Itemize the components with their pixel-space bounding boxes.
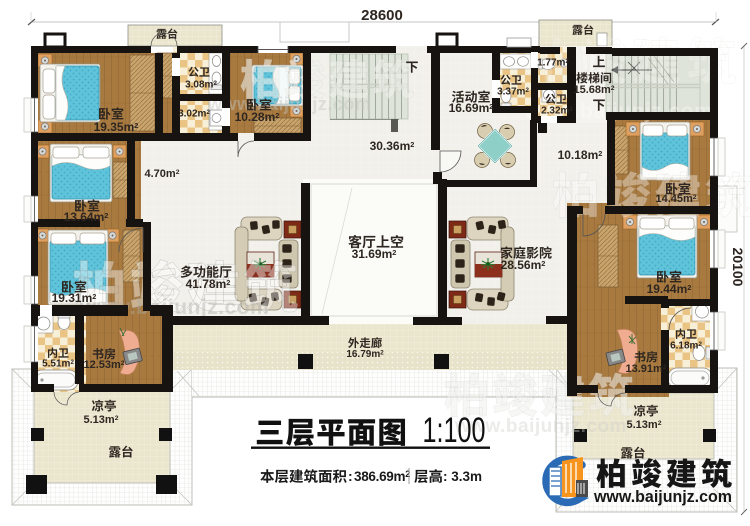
svg-text:10.18m2: 10.18m2 (558, 148, 603, 162)
svg-text:6.18m2: 6.18m2 (670, 341, 702, 352)
svg-text:www.baijunjz.com: www.baijunjz.com (593, 487, 732, 506)
svg-text:30.36m2: 30.36m2 (370, 139, 415, 153)
svg-text:5.51m2: 5.51m2 (42, 359, 74, 370)
svg-text:19.35m2: 19.35m2 (94, 120, 139, 134)
svg-text:28.56m2: 28.56m2 (501, 258, 546, 272)
svg-text:3.08m2: 3.08m2 (185, 80, 217, 91)
svg-text:1.77m2: 1.77m2 (537, 58, 569, 69)
svg-text:: 3.3m: : 3.3m (443, 469, 482, 484)
svg-text:19.31m2: 19.31m2 (52, 291, 97, 305)
svg-text:12.53m2: 12.53m2 (83, 359, 124, 371)
svg-text:41.78m2: 41.78m2 (186, 277, 231, 291)
svg-text:14.45m2: 14.45m2 (655, 193, 696, 205)
svg-text:19.44m2: 19.44m2 (647, 282, 692, 296)
svg-text:28600: 28600 (361, 7, 403, 24)
svg-text:31.69m2: 31.69m2 (352, 247, 397, 261)
svg-text:3.02m2: 3.02m2 (178, 109, 210, 120)
svg-text:2.32m2: 2.32m2 (541, 106, 573, 117)
svg-text:13.64m2: 13.64m2 (64, 210, 109, 224)
svg-text:www.baijunjz.com: www.baijunjz.com (207, 94, 371, 114)
svg-text::: : (348, 468, 353, 484)
svg-text:5.13m2: 5.13m2 (627, 419, 662, 431)
svg-text:10.28m2: 10.28m2 (235, 110, 280, 124)
svg-text:1:100: 1:100 (423, 411, 486, 450)
svg-text:13.91m2: 13.91m2 (625, 363, 666, 375)
svg-text:3.37m2: 3.37m2 (497, 87, 529, 98)
svg-text:4.70m2: 4.70m2 (145, 168, 180, 180)
svg-text:20100: 20100 (730, 248, 746, 287)
svg-text:15.68m2: 15.68m2 (573, 84, 614, 96)
svg-text:16.69m2: 16.69m2 (449, 101, 494, 115)
svg-text:386.69m2: 386.69m2 (354, 469, 410, 484)
svg-text:16.79m2: 16.79m2 (346, 349, 384, 360)
svg-text:5.13m2: 5.13m2 (84, 414, 119, 426)
